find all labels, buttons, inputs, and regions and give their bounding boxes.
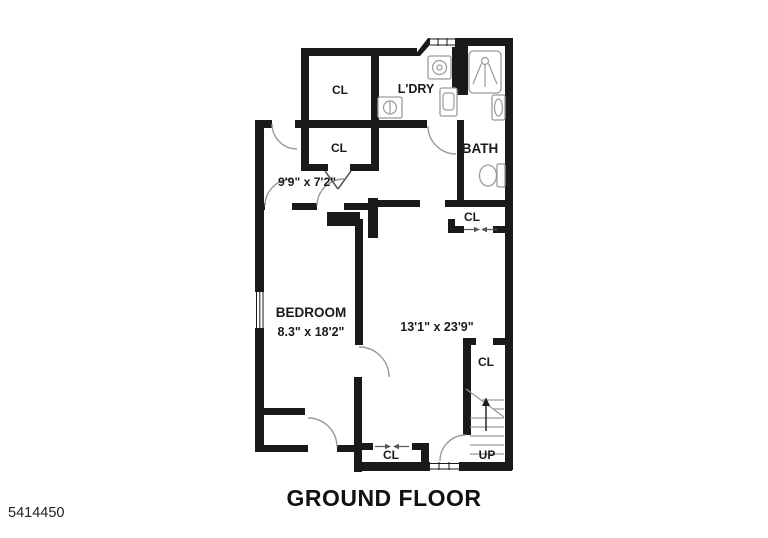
door-arc-bath <box>428 126 456 154</box>
door-arc-side-entry <box>272 124 297 149</box>
wall <box>292 203 317 210</box>
wall <box>303 48 417 56</box>
wall-bottom-exterior <box>354 462 430 471</box>
wall <box>493 338 505 345</box>
wall-bedroom-divider <box>355 219 363 345</box>
stair-treads <box>470 400 504 454</box>
wall <box>412 443 421 450</box>
bedroom-dims: 8.3" x 18'2" <box>278 325 345 339</box>
bifold-arrow <box>474 227 480 232</box>
bedroom-label: BEDROOM <box>276 305 347 320</box>
bifold-markers <box>375 227 497 449</box>
wall <box>361 443 373 450</box>
washer-icon <box>428 56 451 79</box>
wall-bedroom-divider <box>354 377 362 472</box>
wall <box>463 338 476 345</box>
window <box>430 461 459 472</box>
wall <box>337 445 355 452</box>
wall <box>301 48 309 171</box>
fixtures <box>378 51 505 187</box>
wall <box>295 120 305 128</box>
wall-left-exterior <box>255 328 264 452</box>
living-room-dims: 13'1" x 23'9" <box>400 320 473 334</box>
closet-top-label: CL <box>332 83 348 97</box>
wall <box>301 164 328 171</box>
wall <box>255 445 308 452</box>
closet-entry-label: CL <box>383 448 399 462</box>
wall <box>448 226 464 233</box>
wall <box>255 203 265 210</box>
wall-bath-left <box>457 120 464 203</box>
laundry-label: L'DRY <box>398 82 435 96</box>
door-arc-stairs <box>440 435 466 461</box>
door-arc-bedroom <box>359 347 389 377</box>
up-label: UP <box>479 448 496 462</box>
floorplan-page: CL L'DRY BATH CL 9'9" x 7'2" CL BEDROOM … <box>0 0 768 538</box>
door-arc <box>308 418 337 447</box>
wall-bottom-exterior <box>459 462 512 471</box>
wall <box>421 443 429 469</box>
listing-id: 5414450 <box>8 505 64 521</box>
wall <box>368 200 420 207</box>
stairs <box>466 389 504 454</box>
wall-stub <box>263 408 305 415</box>
wall-right-exterior <box>505 38 513 470</box>
closet-mid-label: CL <box>331 141 347 155</box>
closet-hall-label: CL <box>464 210 480 224</box>
floorplan-drawing: CL L'DRY BATH CL 9'9" x 7'2" CL BEDROOM … <box>0 0 768 538</box>
toilet-icon <box>480 165 497 186</box>
wall <box>344 203 372 210</box>
wall <box>350 164 379 171</box>
wall <box>445 200 512 207</box>
bath-label: BATH <box>462 141 499 156</box>
room-small-dims: 9'9" x 7'2" <box>278 175 336 189</box>
toilet-icon <box>497 164 505 187</box>
wall <box>305 120 427 128</box>
closet-stairs-label: CL <box>478 355 494 369</box>
bifold-arrow <box>481 227 487 232</box>
floor-title: GROUND FLOOR <box>0 485 768 512</box>
